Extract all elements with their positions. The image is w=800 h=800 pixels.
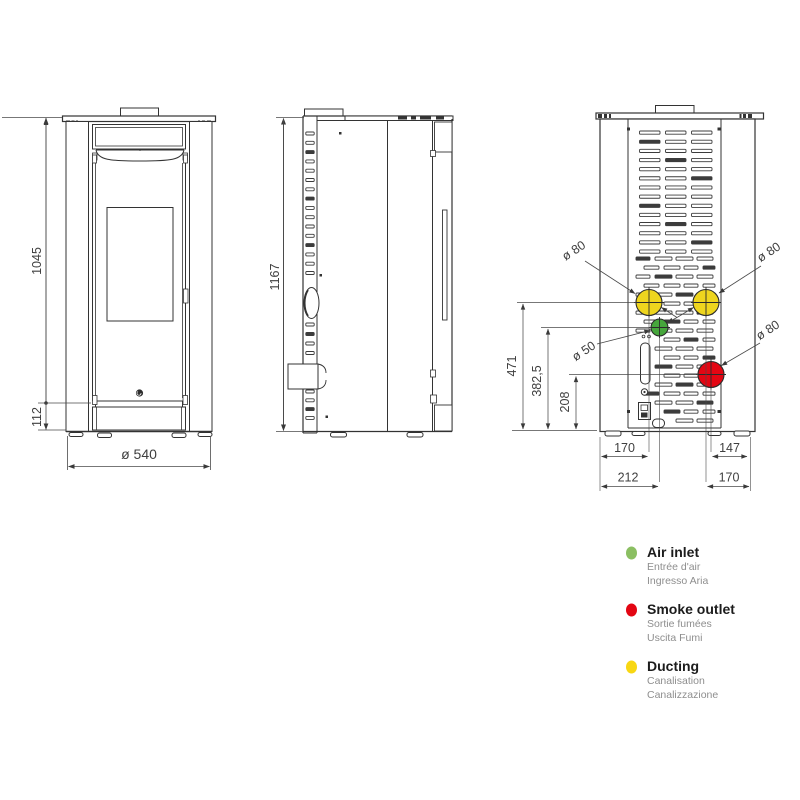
- door-handle: [96, 150, 184, 161]
- dim-ducting-height: 471: [505, 356, 519, 377]
- label-ducting-left-diameter: ø 80: [560, 238, 589, 263]
- dim-smoke-outlet-height: 208: [558, 392, 572, 413]
- smoke-fan-housing: [288, 364, 318, 389]
- back-view: [596, 106, 764, 437]
- door-glass: [107, 208, 173, 322]
- ducting-dot-icon: [625, 660, 638, 674]
- legend-subtitle-fr: Canalisation: [647, 675, 718, 688]
- label-ducting-right-diameter: ø 80: [755, 239, 784, 264]
- legend-item-air-inlet: Air inlet Entrée d'air Ingresso Aria: [625, 544, 795, 588]
- hopper-lid-panel: [93, 125, 186, 150]
- front-view: [63, 108, 216, 438]
- dim-front-width: ø 540: [121, 446, 157, 462]
- legend-title: Air inlet: [647, 544, 708, 560]
- legend-subtitle-fr: Sortie fumées: [647, 618, 735, 631]
- dim-front-height: 1045: [30, 247, 44, 275]
- side-view: [288, 109, 453, 437]
- legend-title: Ducting: [647, 658, 718, 674]
- dim-front-plinth-height: 112: [30, 407, 44, 427]
- legend-subtitle-fr: Entrée d'air: [647, 561, 708, 574]
- legend-title: Smoke outlet: [647, 601, 735, 617]
- dim-side-height: 1167: [268, 264, 282, 291]
- label-air-diameter: ø 50: [570, 338, 599, 363]
- back-handle: [653, 419, 665, 428]
- legend-item-smoke-outlet: Smoke outlet Sortie fumées Uscita Fumi: [625, 601, 795, 645]
- label-smoke-diameter: ø 80: [754, 317, 783, 342]
- dim-smoke-right-offset: 147: [719, 441, 740, 455]
- legend-subtitle-it: Canalizzazione: [647, 689, 718, 702]
- dim-air-left-offset: 212: [618, 471, 639, 485]
- dim-air-inlet-height: 382,5: [530, 365, 544, 396]
- legend-subtitle-it: Ingresso Aria: [647, 575, 708, 588]
- smoke-outlet-dot-icon: [625, 603, 638, 617]
- door-hinge: [184, 289, 189, 303]
- dim-ducting-left-offset: 170: [614, 441, 635, 455]
- back-vertical-slot: [641, 343, 651, 384]
- stove-technical-drawing: 1045 112 ø 540: [0, 0, 800, 800]
- dim-ducting-right-offset: 170: [719, 471, 740, 485]
- legend-item-ducting: Ducting Canalisation Canalizzazione: [625, 658, 795, 702]
- pedestal: [93, 407, 186, 430]
- air-inlet-dot-icon: [625, 546, 638, 560]
- legend: Air inlet Entrée d'air Ingresso Aria Smo…: [625, 544, 795, 715]
- side-door-groove: [443, 210, 448, 320]
- legend-subtitle-it: Uscita Fumi: [647, 632, 735, 645]
